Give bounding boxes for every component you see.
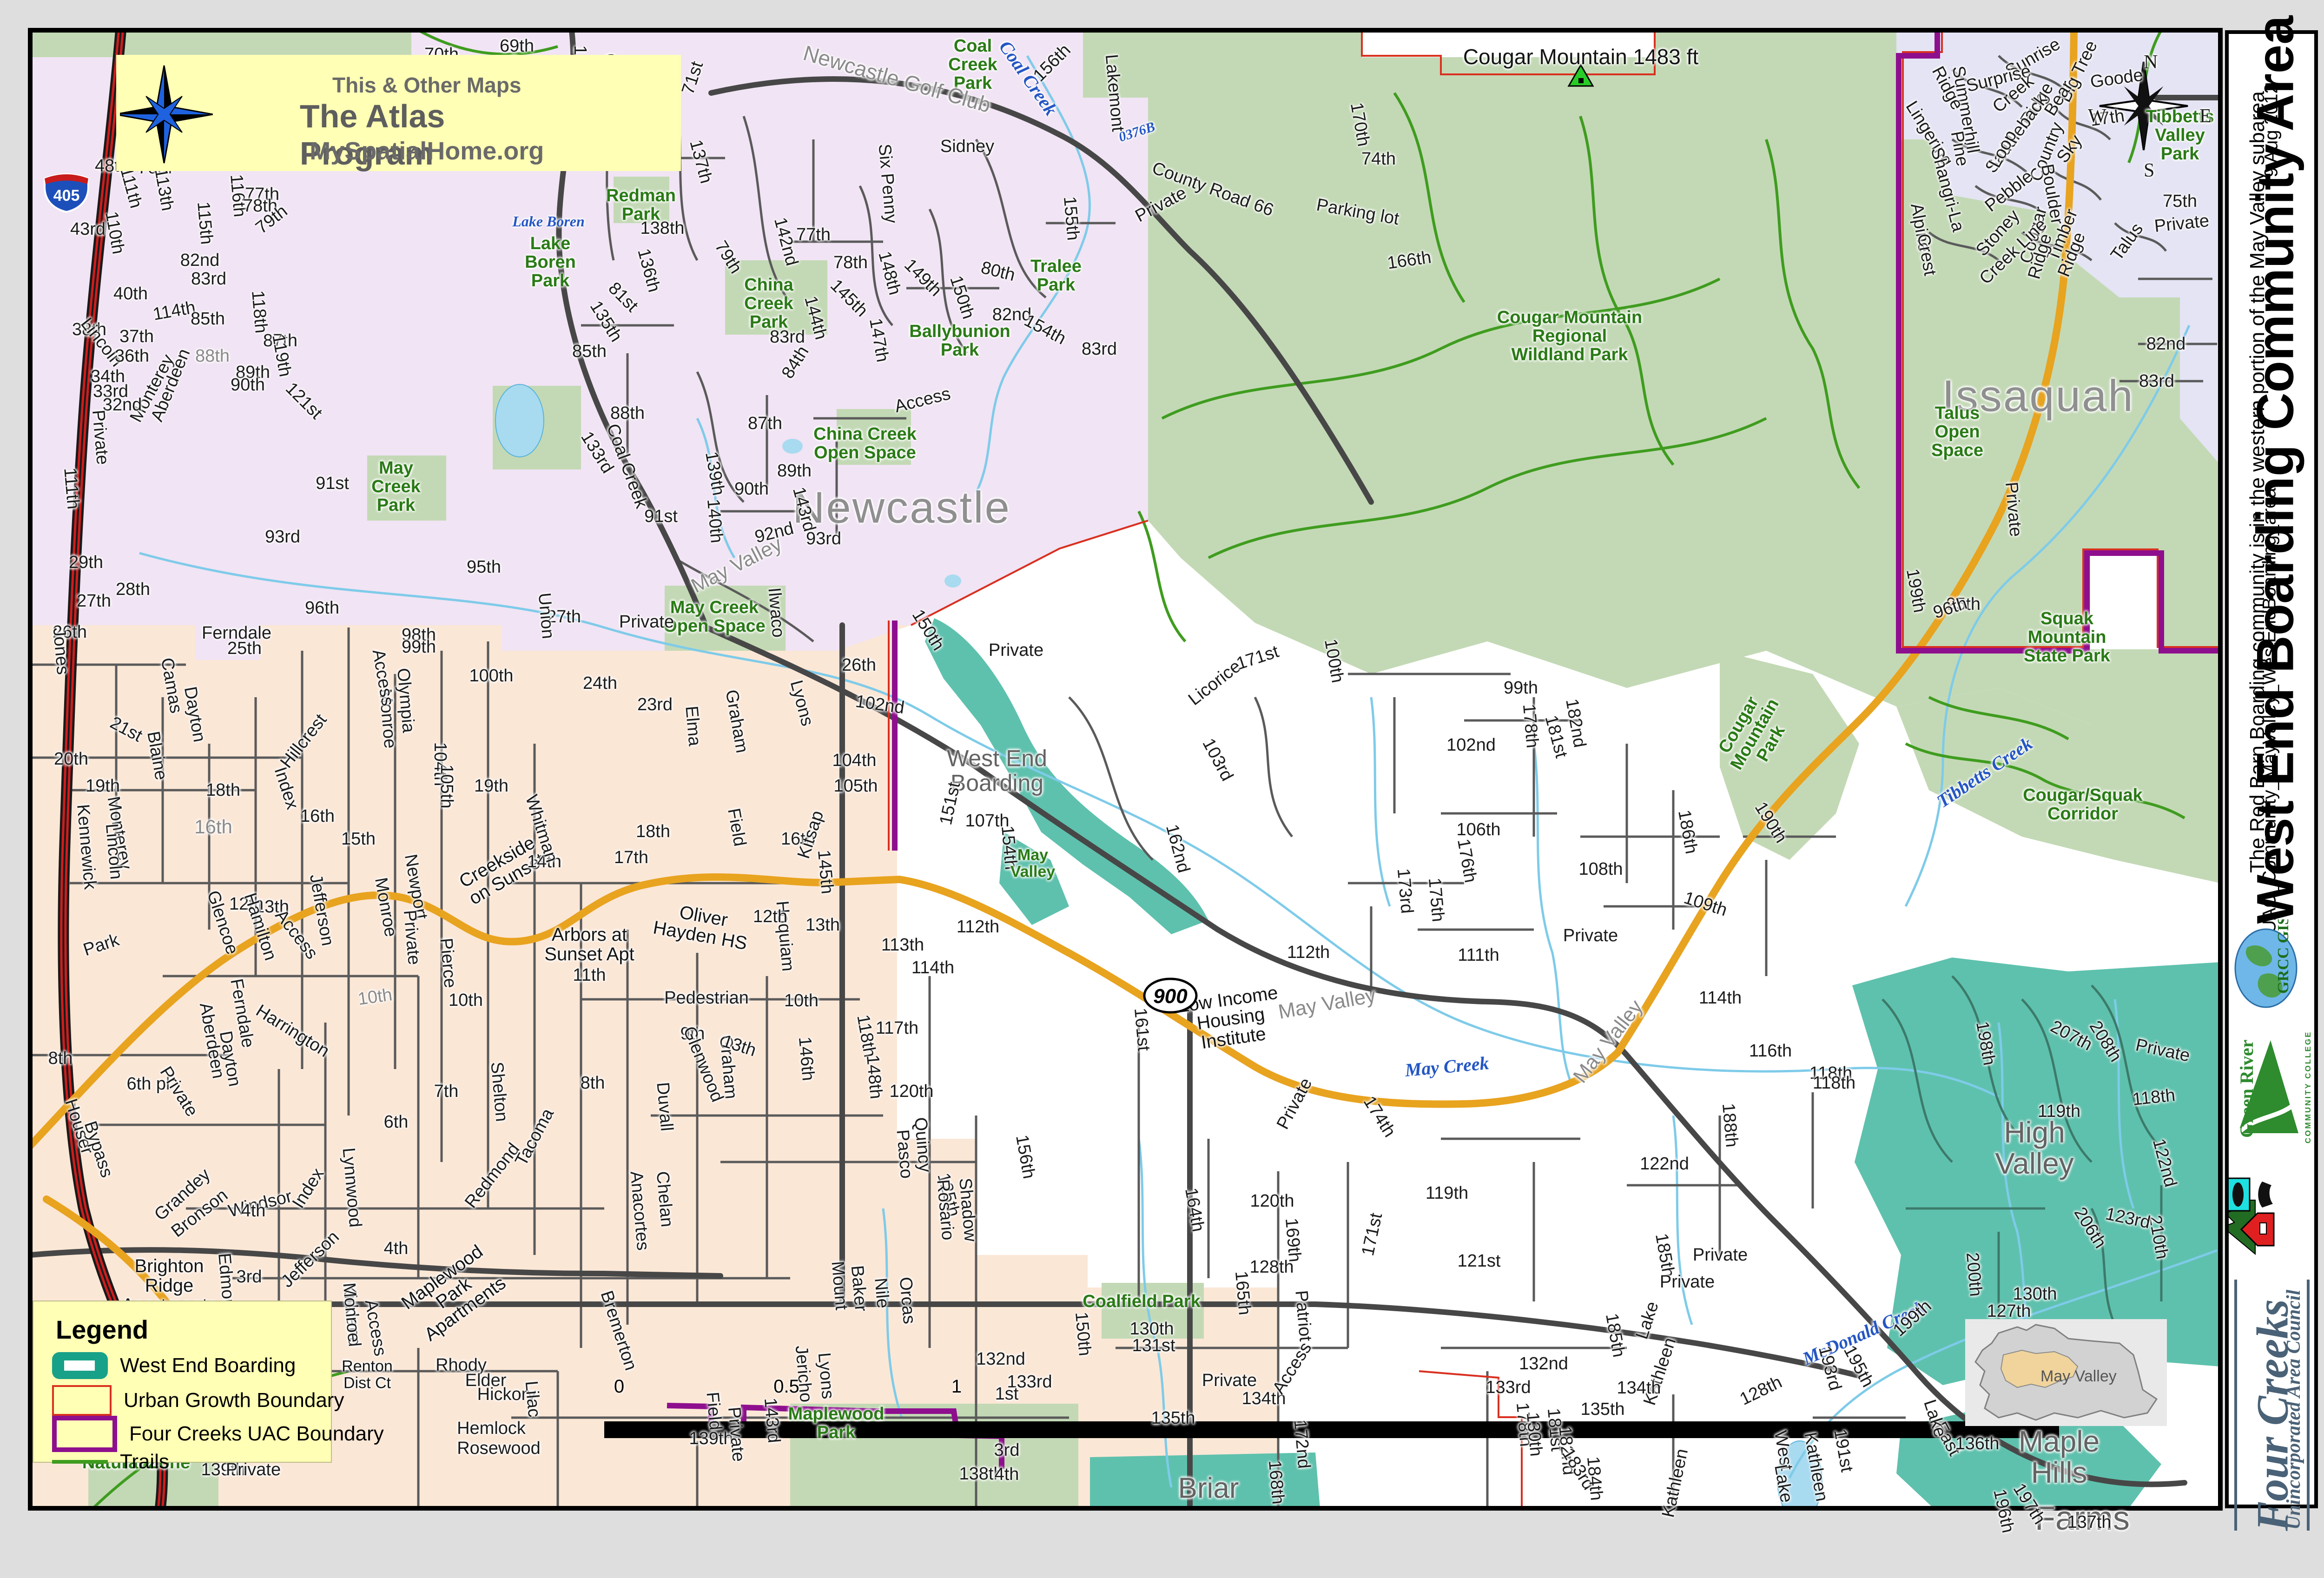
lake-boren: [495, 384, 544, 457]
script-rule-left: [2234, 1280, 2237, 1531]
legend-item-trails: Trails: [52, 1446, 169, 1477]
logo-line1: This & Other Maps: [332, 73, 521, 98]
may-creek-park-area: [367, 456, 446, 521]
grcc-gis-logo: GRCC GIS: [2229, 919, 2314, 1017]
svg-text:COMMUNITY COLLEGE: COMMUNITY COLLEGE: [2304, 1031, 2312, 1143]
map-canvas: [0, 0, 2324, 1534]
legend-title: Legend: [56, 1314, 148, 1345]
park-strip: [30, 30, 411, 57]
scale-tick-label: 0.5: [773, 1376, 799, 1397]
inset-locator-map: May Valley: [1965, 1319, 2167, 1426]
legend-swatch-red: [52, 1385, 112, 1416]
legend-label: Trails: [120, 1450, 169, 1473]
redman-park-area: [614, 177, 669, 223]
map-date: 9 Aug 2012: [2261, 79, 2282, 182]
scale-tick-label: 0: [614, 1376, 624, 1397]
legend-label: Urban Growth Boundary: [124, 1389, 344, 1412]
svg-text:GRCC GIS: GRCC GIS: [2275, 919, 2292, 994]
script-rule-right: [2307, 1280, 2310, 1531]
maplewood-park-area: [790, 1404, 1078, 1508]
legend-label: West End Boarding: [120, 1354, 296, 1377]
green-river-college-logo: Green River COMMUNITY COLLEGE: [2229, 1022, 2314, 1152]
legend-item-urban-growth-boundary: Urban Growth Boundary: [52, 1385, 344, 1416]
svg-text:405: 405: [53, 187, 80, 205]
map-stage: NewcastleIssaquahWest End BoardingHigh V…: [0, 0, 2324, 1534]
legend-label: Four Creeks UAC Boundary: [129, 1422, 384, 1446]
private-pocket: [2090, 552, 2162, 649]
council-subtitle: Unincorporated Area Council: [2283, 1261, 2305, 1558]
may-creek-open-space-area: [665, 586, 786, 651]
interstate-405-shield: 405: [41, 168, 92, 215]
legend-swatch-teal: [52, 1352, 108, 1379]
legend-box: Legend West End Boarding Urban Growth Bo…: [33, 1301, 332, 1463]
legend-item-west-end-boarding: West End Boarding: [52, 1350, 296, 1381]
atlas-program-logo-box: This & Other Maps The Atlas Program MySp…: [116, 55, 681, 171]
compass-star-icon: [120, 55, 213, 171]
white-pocket: [1362, 30, 1655, 57]
briar-area: [1090, 1453, 1320, 1508]
scale-tick-label: 1: [951, 1376, 962, 1397]
pond: [944, 574, 961, 588]
title-sidebar: West End Boarding Community Area The Red…: [2225, 30, 2318, 1508]
legend-item-four-creeks-uac-boundary: Four Creeks UAC Boundary: [52, 1419, 384, 1449]
svg-text:900: 900: [1153, 985, 1188, 1008]
china-creek-park-area: [725, 260, 827, 335]
scale-bar: [604, 1421, 2059, 1438]
pond: [782, 439, 803, 454]
sr-900-shield: 900: [1142, 976, 1199, 1017]
svg-text:Green River: Green River: [2236, 1040, 2257, 1138]
logo-line3: MySpatialHome.org: [310, 137, 544, 165]
legend-swatch-trails: [52, 1460, 108, 1464]
